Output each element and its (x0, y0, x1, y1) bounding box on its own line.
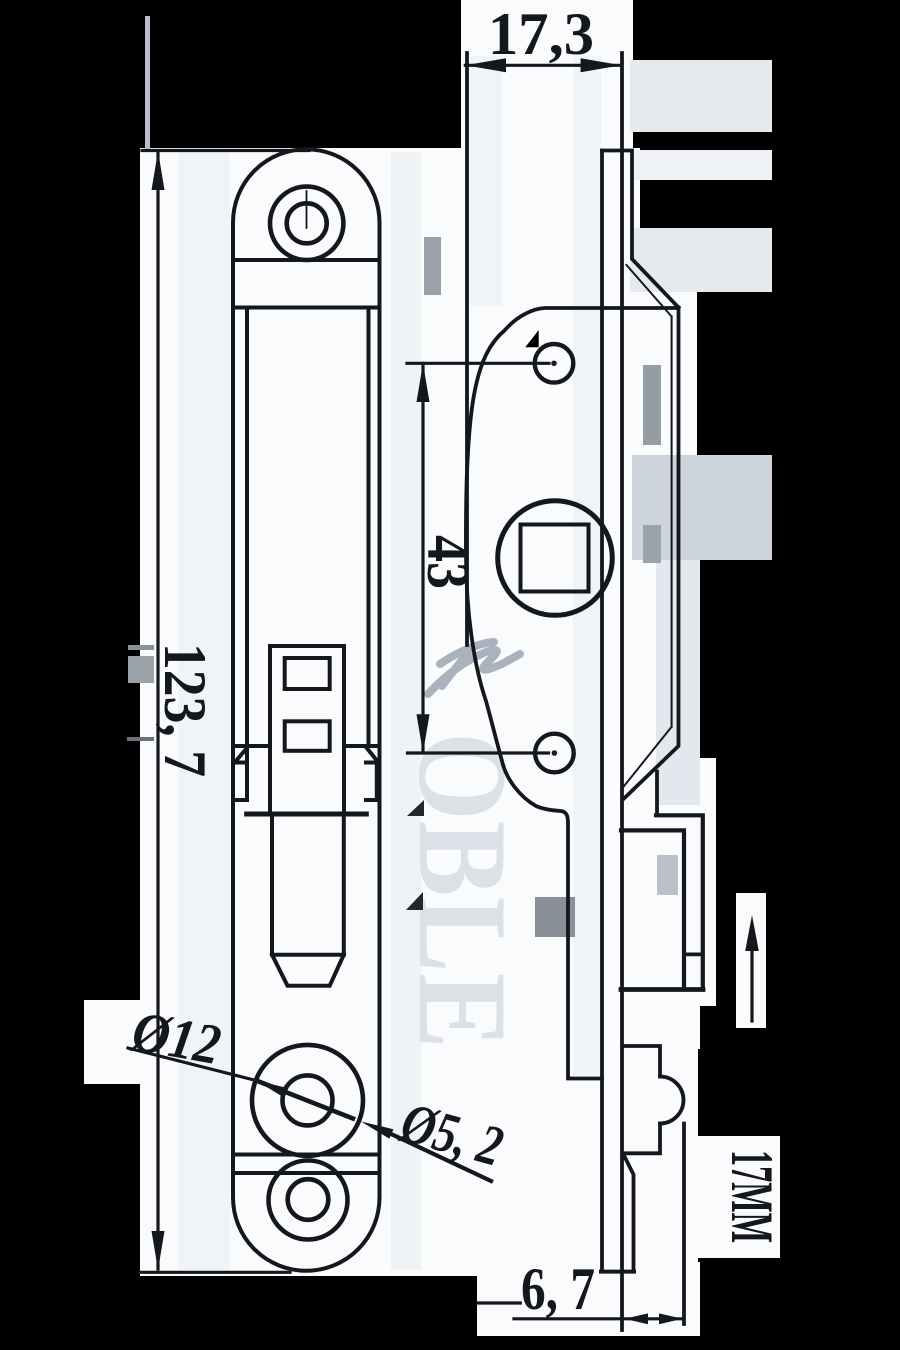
svg-text:43: 43 (415, 535, 481, 589)
svg-text:17,3: 17,3 (488, 1, 594, 67)
svg-text:17MM: 17MM (719, 1150, 785, 1243)
svg-text:6, 7: 6, 7 (521, 1256, 595, 1322)
svg-text:123, 7: 123, 7 (152, 643, 218, 777)
